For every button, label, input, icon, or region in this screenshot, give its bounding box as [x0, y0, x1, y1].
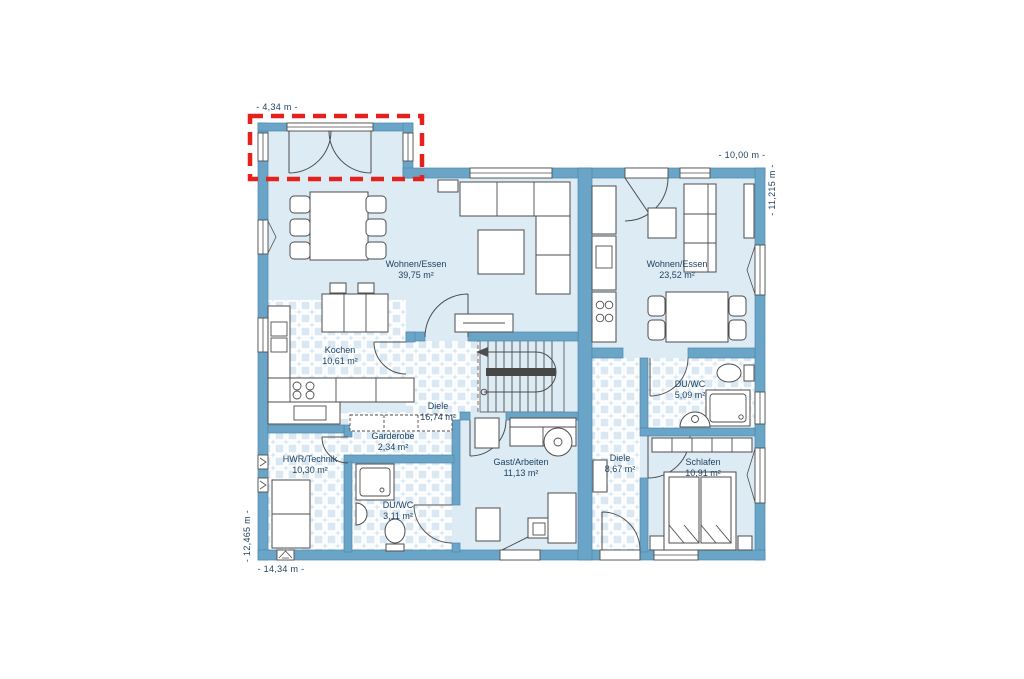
room-name: DU/WC: [675, 379, 706, 389]
dining-table: [310, 192, 368, 260]
chair: [729, 320, 746, 340]
room-name: Gast/Arbeiten: [493, 457, 548, 467]
chair: [290, 196, 310, 213]
gast-terrace-opening: [500, 550, 540, 560]
room-area: 10,61 m²: [322, 356, 358, 366]
party-wall: [578, 168, 592, 560]
floor-plan: Wohnen/Essen39,75 m² Kochen10,61 m² Diel…: [0, 0, 1024, 679]
sofa: [460, 182, 570, 216]
label-kochen: Kochen10,61 m²: [322, 345, 358, 366]
chair: [366, 196, 386, 213]
furniture-hwr: [272, 480, 310, 548]
label-duwc-left: DU/WC3,11 m²: [383, 500, 414, 521]
room-name: DU/WC: [383, 500, 414, 510]
room-area: 16,74 m²: [420, 412, 456, 422]
side-table: [475, 418, 499, 448]
toilet: [385, 519, 405, 543]
desk: [548, 493, 576, 543]
room-area: 2,34 m²: [378, 442, 409, 452]
bar-stool: [330, 283, 346, 293]
staircase: [476, 338, 564, 412]
shower: [706, 390, 750, 426]
kitchen-cabinet-row: [268, 402, 340, 424]
chair: [648, 296, 665, 316]
label-garderobe: Garderobe2,34 m²: [371, 431, 414, 452]
toilet-tank: [386, 544, 404, 551]
room-area: 11,13 m²: [504, 468, 539, 478]
room-area: 10,91 m²: [685, 468, 721, 478]
room-area: 5,09 m²: [675, 390, 706, 400]
room-area: 10,30 m²: [292, 465, 328, 475]
chair: [366, 219, 386, 236]
mattress: [669, 477, 699, 543]
room-name: HWR/Technik: [283, 454, 338, 464]
room-name: Schlafen: [685, 457, 720, 467]
room-area: 8,67 m²: [605, 464, 636, 474]
label-schlafen: Schlafen10,91 m²: [685, 457, 721, 478]
dim-annex-width: - 4,34 m -: [256, 102, 298, 112]
furniture-kitchen-right: [592, 186, 616, 342]
stair-rail: [486, 368, 556, 376]
room-name: Garderobe: [371, 431, 414, 441]
room-name: Wohnen/Essen: [647, 259, 708, 269]
chair: [648, 320, 665, 340]
cabinet: [476, 508, 500, 541]
dining-table: [666, 292, 728, 342]
chair: [290, 242, 310, 259]
dim-right-height: - 11,215 m -: [767, 164, 777, 215]
dim-left-height: - 12,465 m -: [242, 510, 252, 562]
kitchen-island: [322, 294, 388, 332]
nightstand: [650, 536, 664, 550]
chair: [729, 296, 746, 316]
right-unit-entry-opening: [625, 168, 668, 178]
mattress: [701, 477, 731, 543]
round-table: [544, 428, 572, 456]
shower: [356, 464, 394, 500]
room-name: Diele: [610, 453, 631, 463]
dim-total-width: - 14,34 m -: [258, 564, 305, 574]
toilet: [717, 364, 741, 382]
coffee-table: [478, 230, 524, 274]
room-area: 3,11 m²: [383, 511, 413, 521]
room-area: 23,52 m²: [659, 270, 695, 280]
toilet-tank: [744, 365, 754, 381]
bar-stool: [358, 283, 374, 293]
dim-right-wing-width: - 10,00 m -: [719, 150, 766, 160]
nightstand: [738, 536, 752, 550]
label-duwc-right: DU/WC5,09 m²: [675, 379, 706, 400]
diele-right-terrace-opening: [600, 550, 640, 560]
chair: [290, 219, 310, 236]
chair: [366, 242, 386, 259]
room-name: Diele: [428, 401, 449, 411]
room-name: Kochen: [325, 345, 356, 355]
sideboard: [744, 184, 754, 238]
room-name: Wohnen/Essen: [386, 259, 447, 269]
wardrobe: [652, 438, 752, 452]
tall-cabinet: [592, 186, 616, 234]
sideboard: [438, 180, 458, 192]
coffee-table: [648, 208, 676, 238]
room-area: 39,75 m²: [398, 270, 434, 280]
